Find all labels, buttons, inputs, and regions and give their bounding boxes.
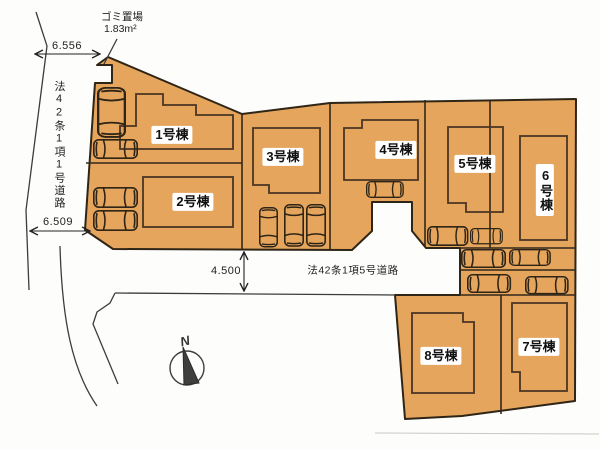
west-road-inner-curve: [60, 246, 97, 406]
building-6-label: 6号棟: [536, 164, 554, 216]
south-road-bottom-edge: [115, 293, 395, 295]
dimension-west-upper: 6.556: [52, 40, 82, 52]
south-road-name: 法42条1項5号道路: [307, 263, 398, 278]
dimension-west-lower: 6.509: [43, 216, 73, 228]
site-plan: 1号棟 2号棟 3号棟 4号棟 5号棟 6号棟 7号棟 8号棟 6.556 6.…: [0, 0, 600, 450]
north-arrow: [170, 347, 204, 385]
site-plan-drawing: [0, 0, 600, 450]
scan-artifact-line: [375, 433, 599, 434]
waste-station-area: 1.83m²: [104, 24, 143, 36]
north-arrow-needle: [183, 347, 199, 385]
building-8-label: 8号棟: [420, 347, 461, 365]
building-3-label: 3号棟: [262, 148, 303, 166]
waste-station-note: ゴミ置場 1.83m²: [101, 12, 143, 35]
building-5-label: 5号棟: [454, 155, 495, 173]
west-road-name: 法42条1項1号道路: [51, 81, 67, 210]
building-7-label: 7号棟: [518, 338, 559, 356]
dimension-south-road: 4.500: [211, 265, 241, 277]
building-4-label: 4号棟: [375, 141, 416, 159]
building-2-label: 2号棟: [172, 193, 213, 211]
road-corner-curve: [93, 293, 118, 384]
building-1-label: 1号棟: [151, 126, 192, 144]
waste-station-name: ゴミ置場: [101, 11, 143, 23]
